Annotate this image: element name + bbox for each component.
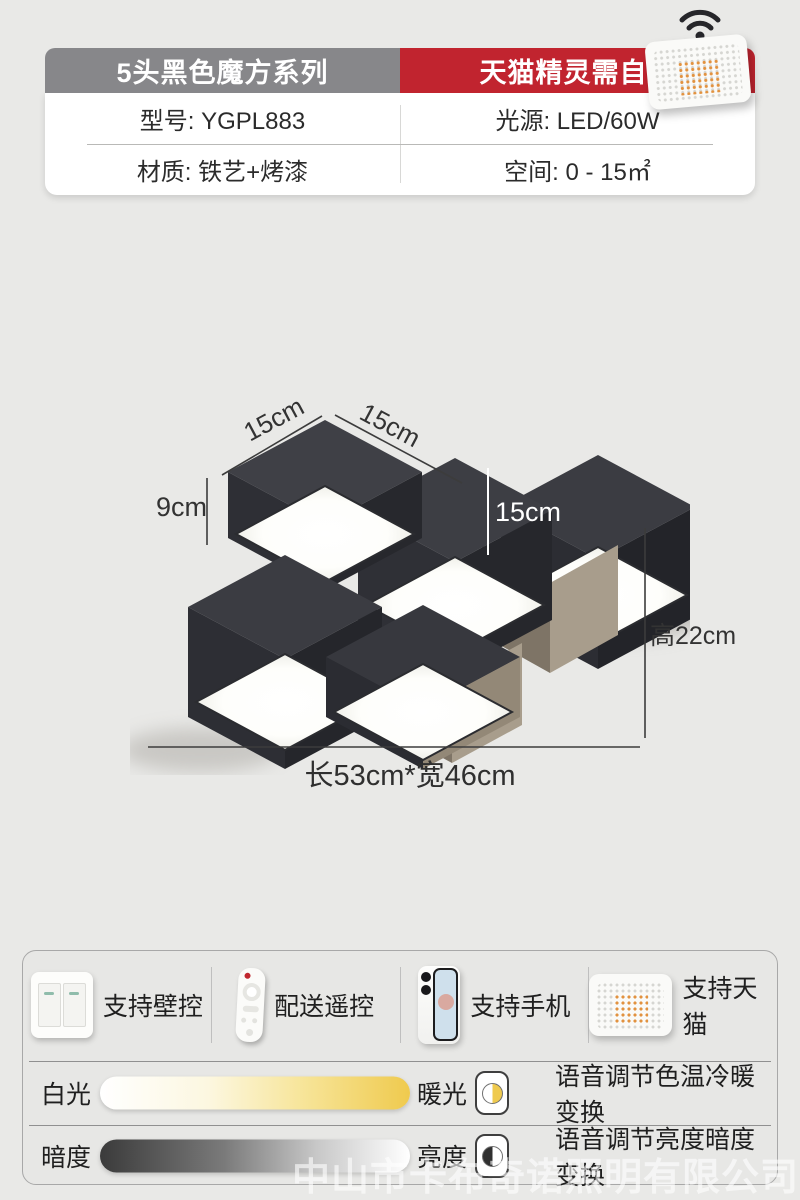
remote-dpad: [242, 983, 261, 1002]
brightness-row: 暗度 亮度 语音调节亮度暗度变换: [23, 1130, 777, 1182]
smart-speaker-graphic: [645, 4, 757, 112]
dim-label-cube-face: 15cm: [495, 497, 561, 528]
half-warm-circle-icon: [482, 1083, 503, 1104]
smart-speaker-icon: [589, 974, 672, 1036]
speaker-led-matrix: [615, 995, 648, 1025]
remote-button: [245, 1029, 252, 1036]
remote-power-dot: [244, 973, 250, 979]
wall-switch-icon: [31, 972, 93, 1038]
dim-label-side-height: 9cm: [156, 492, 207, 523]
dim-label: 暗度: [41, 1138, 91, 1174]
phone-wallpaper: [438, 994, 454, 1010]
color-temp-description: 语音调节色温冷暖变换: [555, 1057, 777, 1129]
phone-camera: [421, 985, 431, 995]
color-temp-gradient-bar: [100, 1077, 410, 1110]
speaker-body: [644, 34, 752, 111]
feature-phone-control: 支持手机: [401, 951, 589, 1059]
remote-control-icon: [235, 967, 266, 1042]
feature-card: 支持壁控 配送遥控: [22, 950, 778, 1185]
spec-model: 型号: YGPL883: [45, 93, 400, 144]
feature-row: 支持壁控 配送遥控: [23, 951, 777, 1059]
series-tab: 5头黑色魔方系列: [45, 48, 400, 93]
spec-space: 空间: 0 - 15㎡: [400, 144, 755, 195]
feature-wall-control: 支持壁控: [23, 951, 211, 1059]
feature-label: 支持手机: [470, 987, 570, 1023]
dim-label-footprint: 长53cm*宽46cm: [130, 752, 690, 794]
switch-rocker: [63, 983, 86, 1027]
brightness-toggle-icon: [475, 1134, 509, 1178]
remote-button: [242, 1006, 258, 1013]
smartphone-icon: [418, 966, 460, 1044]
spec-material: 材质: 铁艺+烤漆: [45, 144, 400, 195]
phone-screen: [433, 968, 458, 1041]
speaker-led-matrix: [678, 59, 721, 95]
color-temp-toggle-icon: [475, 1071, 509, 1115]
lamp-illustration: [130, 405, 690, 775]
feature-label: 支持壁控: [103, 987, 203, 1023]
phone-camera: [421, 972, 431, 982]
remote-button: [241, 1018, 246, 1023]
remote-button: [252, 1018, 257, 1023]
switch-rocker: [38, 983, 61, 1027]
white-light-label: 白光: [41, 1075, 91, 1111]
series-tab-label: 5头黑色魔方系列: [116, 51, 328, 90]
half-dark-circle-icon: [482, 1146, 503, 1167]
spec-horizontal-divider: [87, 144, 713, 145]
feature-remote-control: 配送遥控: [212, 951, 400, 1059]
bright-label: 亮度: [417, 1138, 467, 1174]
brightness-gradient-bar: [100, 1140, 410, 1173]
color-temp-row: 白光 暖光 语音调节色温冷暖变换: [23, 1067, 777, 1119]
feature-tmall-genie: 支持天猫: [589, 951, 777, 1059]
product-detail-page: 5头黑色魔方系列 天猫精灵需自购 型号: YGPL883 光源: LED/60W…: [0, 0, 800, 1200]
dim-label-total-height: 高22cm: [650, 616, 736, 652]
warm-light-label: 暖光: [417, 1075, 467, 1111]
feature-label: 支持天猫: [682, 969, 777, 1041]
feature-label: 配送遥控: [274, 987, 374, 1023]
product-image: [130, 405, 690, 775]
brightness-description: 语音调节亮度暗度变换: [555, 1120, 777, 1192]
